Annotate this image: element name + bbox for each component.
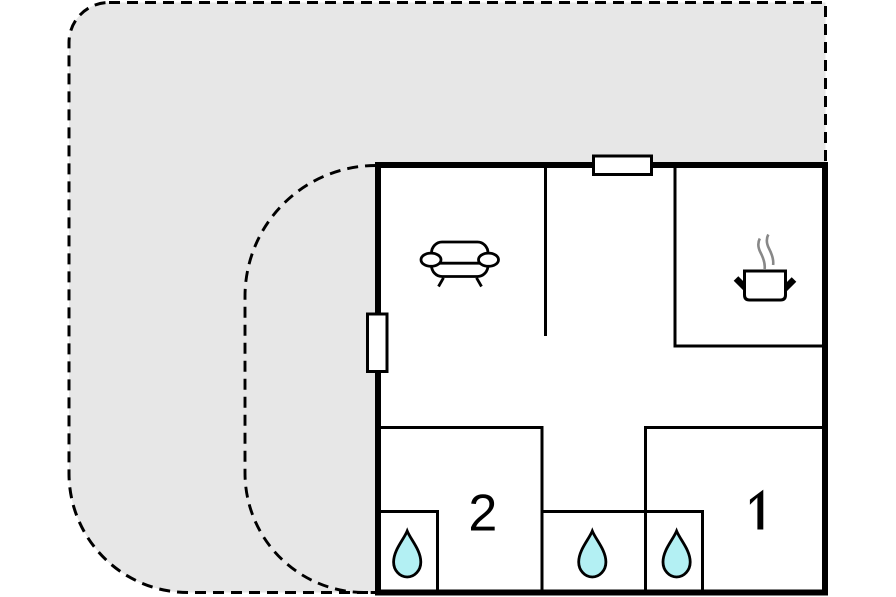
svg-text:2: 2: [468, 485, 497, 543]
